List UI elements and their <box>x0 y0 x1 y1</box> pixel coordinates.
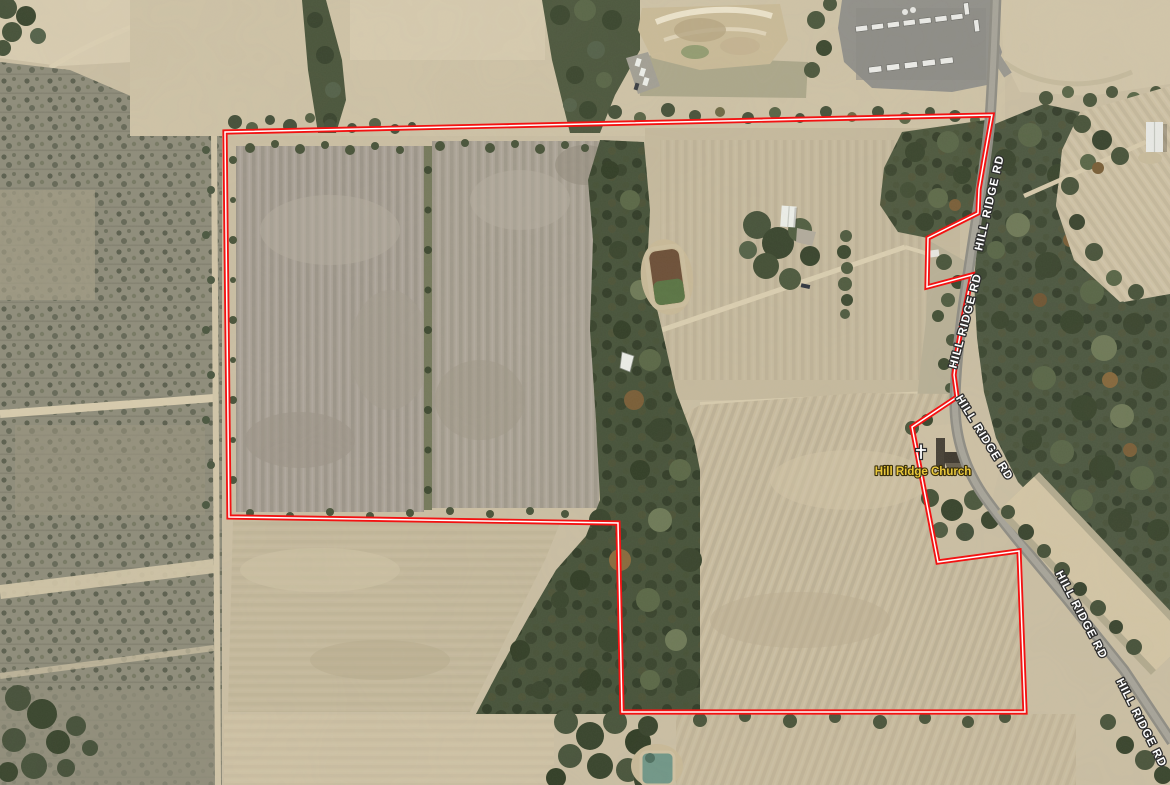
church-label: Hill Ridge Church <box>875 466 971 478</box>
aerial-map-image: HILL RIDGE RD HILL RIDGE RD HILL RIDGE R… <box>0 0 1170 785</box>
photo-grain <box>0 0 1170 785</box>
aerial-scenery <box>0 0 1170 785</box>
screenshot-root: HILL RIDGE RD HILL RIDGE RD HILL RIDGE R… <box>0 0 1170 785</box>
